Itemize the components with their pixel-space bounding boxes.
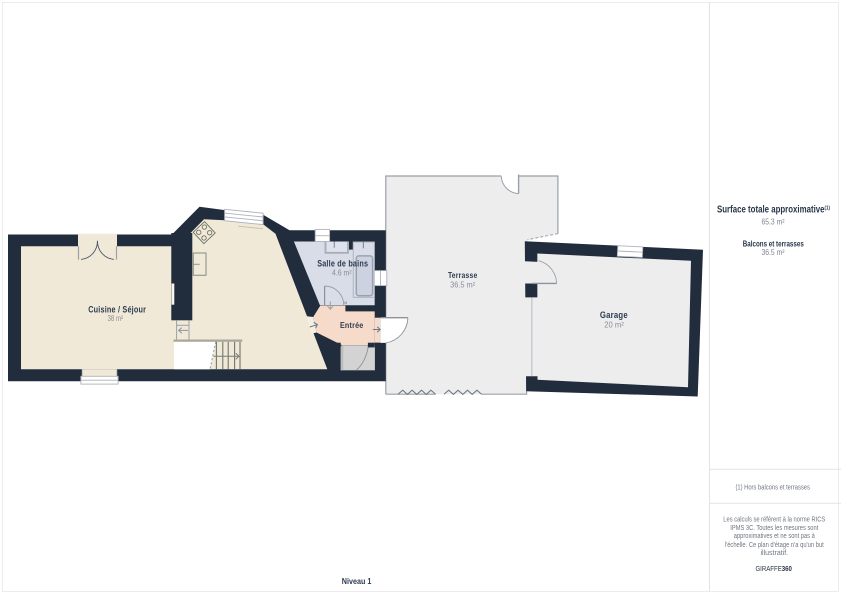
svg-text:IPMS 3C. Toutes les mesures so: IPMS 3C. Toutes les mesures sont [730, 525, 818, 532]
svg-text:approximatives et ne sont pas: approximatives et ne sont pas à [734, 533, 815, 540]
svg-text:illustratif.: illustratif. [760, 550, 788, 557]
svg-text:Les calculs se réfèrent à la n: Les calculs se réfèrent à la norme RICS [723, 516, 825, 523]
svg-text:36.5 m²: 36.5 m² [450, 281, 475, 290]
svg-text:l'échelle. Ce plan d'étage n'a: l'échelle. Ce plan d'étage n'a qu'un but [725, 542, 824, 549]
svg-text:38 m²: 38 m² [108, 314, 124, 323]
svg-text:Salle de bains: Salle de bains [317, 259, 368, 269]
svg-text:65.3 m²: 65.3 m² [762, 218, 785, 227]
svg-text:GIRAFFE360: GIRAFFE360 [755, 564, 792, 573]
svg-text:(1) Hors balcons et terrasses: (1) Hors balcons et terrasses [735, 483, 810, 492]
svg-text:Niveau 1: Niveau 1 [342, 577, 372, 586]
svg-text:Garage: Garage [600, 310, 628, 320]
svg-text:Entrée: Entrée [340, 321, 364, 330]
svg-text:Surface totale approximative(1: Surface totale approximative(1) [717, 205, 830, 216]
svg-text:20 m²: 20 m² [604, 321, 624, 330]
svg-text:4.6 m²: 4.6 m² [332, 269, 352, 278]
svg-text:Balcons et terrasses: Balcons et terrasses [743, 238, 804, 248]
svg-text:Terrasse: Terrasse [448, 270, 478, 280]
svg-text:36.5 m²: 36.5 m² [762, 248, 785, 257]
